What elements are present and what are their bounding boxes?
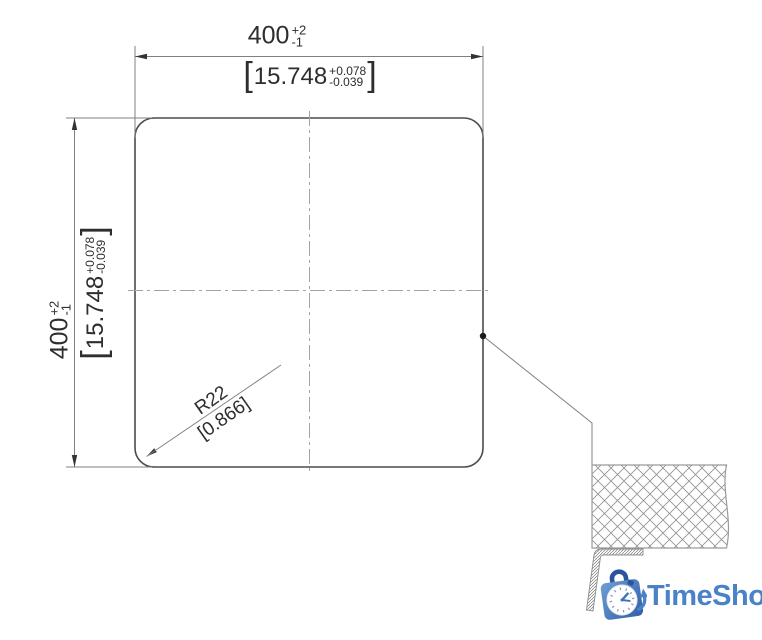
bracket-open: [ <box>242 60 253 90</box>
cutout-technical-drawing: 400+2-1 [15.748+0.078-0.039] 400+2-1 [15… <box>0 0 762 640</box>
drawing-linework <box>0 0 762 640</box>
section-leader-dot <box>480 333 486 339</box>
left-dim-mm-value: 400 <box>48 318 73 360</box>
top-dim-mm-value: 400 <box>248 24 290 49</box>
extension-lines <box>66 46 483 467</box>
top-dim-inch-value: 15.748 <box>254 65 327 89</box>
stopwatch-bag-icon <box>595 566 647 628</box>
top-dimension-inch: [15.748+0.078-0.039] <box>242 62 377 92</box>
left-dimension-inch: [15.748+0.078-0.039] <box>81 225 111 360</box>
logo-wordmark: TimeShop <box>647 582 762 611</box>
dimension-arrowheads <box>72 54 483 467</box>
timeshop-logo: TimeShop <box>595 566 762 628</box>
left-dim-mm-minus: -1 <box>60 301 72 316</box>
top-dimension-mm: 400+2-1 <box>248 24 307 49</box>
top-dim-mm-minus: -1 <box>291 36 306 48</box>
left-dim-inch-minus: -0.039 <box>96 237 107 274</box>
top-dim-inch-minus: -0.039 <box>329 77 366 88</box>
left-dimension-mm: 400+2-1 <box>48 301 73 360</box>
section-leader-line <box>483 336 592 465</box>
countertop-section <box>592 465 728 548</box>
bracket-open: [ <box>79 349 109 360</box>
bracket-close: ] <box>366 60 377 90</box>
bracket-close: ] <box>79 225 109 236</box>
left-dim-inch-value: 15.748 <box>84 276 108 349</box>
